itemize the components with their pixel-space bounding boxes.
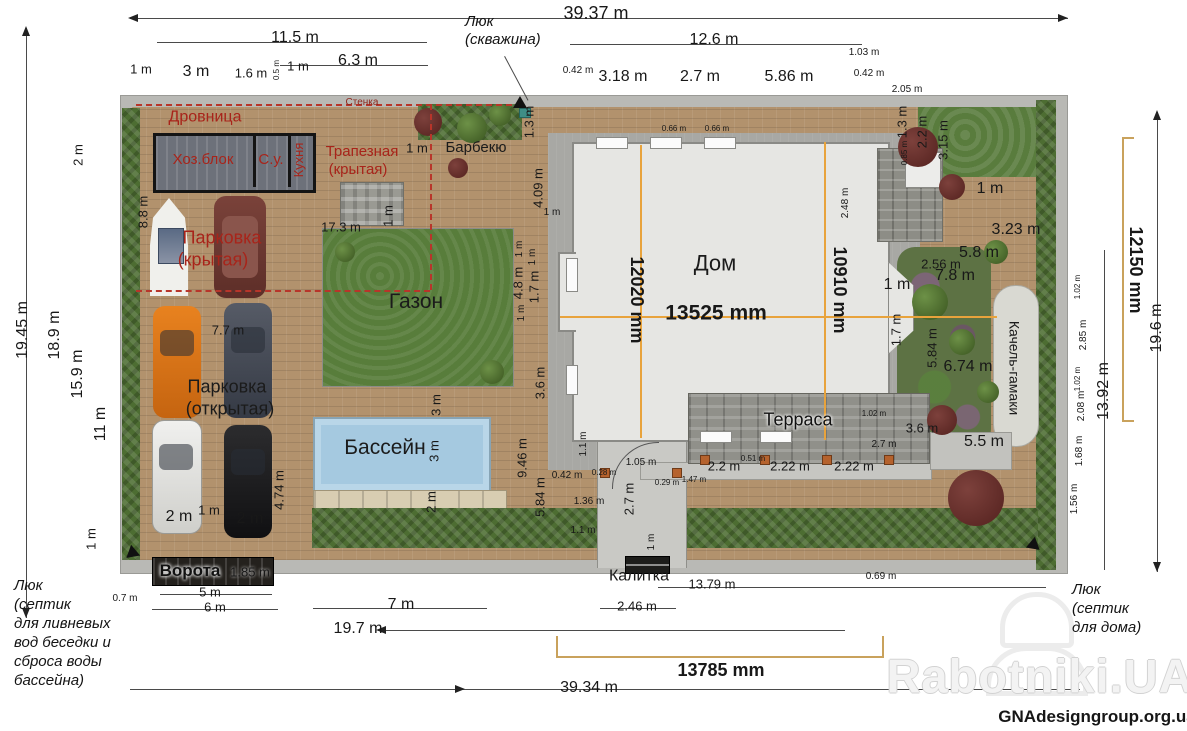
terrace-post: [822, 455, 832, 465]
dim-label-12150: 12150 mm: [1127, 226, 1145, 313]
dim-label: 1.68 m: [1075, 436, 1085, 467]
car-windshield: [160, 330, 194, 356]
septic-left-note: для ливневых: [14, 616, 111, 631]
dim-label: 1.85 m: [230, 566, 270, 579]
watermark-brand: Rabotniki.UA: [886, 651, 1187, 700]
dim-label: 0.28 m: [592, 469, 616, 477]
dim-label: 5 m: [199, 586, 221, 599]
car-windshield: [231, 449, 265, 475]
label-pool: Бассейн: [344, 437, 425, 459]
dim-label: 3.18 m: [599, 69, 648, 85]
dim-label: 1.02 m: [862, 410, 886, 418]
bracket-tick: [1122, 420, 1134, 422]
dim-label: 2.46 m: [617, 600, 657, 613]
tree-green: [912, 284, 948, 320]
dim-label: 2.22 m: [834, 460, 874, 473]
dim-label: 19.45 m: [15, 301, 31, 359]
zone-dashed-line: [430, 104, 432, 290]
dim-label: 0.42 m: [854, 69, 885, 79]
label-main-gate: Ворота: [160, 562, 221, 580]
zone-dashed-line: [136, 290, 430, 292]
dim-label: 1.56 m: [1070, 484, 1080, 515]
dim-label: 6 m: [204, 601, 226, 614]
dim-label: 1 m: [517, 305, 527, 322]
label-bathroom: С.у.: [258, 152, 283, 168]
dim-label: 1 m: [382, 205, 395, 227]
window: [566, 365, 578, 395]
dim-label: 0.66 m: [662, 125, 686, 133]
well-note-line: (скважина): [465, 32, 541, 47]
dim-label: 19.7 m: [334, 621, 383, 637]
dim-label: 2.7 m: [680, 69, 720, 85]
septic-right-note: Люк: [1072, 582, 1101, 597]
arrowhead-icon: [128, 14, 138, 22]
bush-green: [335, 242, 355, 262]
label-wicket-gate: Калитка: [609, 569, 669, 586]
dim-label: 6.3 m: [338, 53, 378, 69]
label-dining-2: (крытая): [329, 162, 388, 178]
dim-label: 6.74 m: [944, 359, 993, 375]
site-plan-canvas: Дровница Хоз.блок С.у. Кухня Трапезная (…: [0, 0, 1187, 731]
dim-label: 9.46 m: [516, 438, 529, 478]
dim-label: 1 m: [884, 277, 911, 293]
window: [704, 137, 736, 149]
label-lawn: Газон: [389, 291, 443, 313]
dim-label-12020: 12020 mm: [628, 256, 646, 343]
dim-label: 13.92 m: [1096, 362, 1112, 420]
window: [760, 431, 792, 443]
dim-label: 4.8 m: [512, 267, 525, 300]
dim-label: 0.51 m: [741, 455, 765, 463]
dim-label: 5.8 m: [959, 245, 999, 261]
window: [700, 431, 732, 443]
dim-label: 2.08 m: [1077, 391, 1087, 422]
dim-label: 2.2 m: [708, 460, 741, 473]
dim-label: 1.02 m: [1074, 367, 1082, 391]
septic-right-note: (септик: [1072, 601, 1129, 616]
dim-label: 11.5 m: [271, 30, 319, 46]
dim-label: 0.7 m: [112, 594, 137, 604]
dim-label: 2.05 m: [892, 85, 923, 95]
dim-label: 1 m: [977, 181, 1004, 197]
dim-label: 1.36 m: [574, 497, 605, 507]
dim-label: 2.22 m: [770, 460, 810, 473]
dim-label: 39.37 m: [563, 4, 628, 22]
arrowhead-icon: [22, 26, 30, 36]
dim-label: 1 m: [515, 241, 525, 258]
dim-label: 1.02 m: [1074, 275, 1082, 299]
tree-burgundy: [939, 174, 965, 200]
tree-green: [489, 104, 511, 126]
label-terrace: Терраса: [763, 411, 832, 430]
arrowhead-icon: [455, 685, 465, 693]
dim-label: 3.6 m: [534, 367, 547, 400]
car-windshield: [159, 444, 193, 470]
dim-label: 5.84 m: [926, 328, 939, 368]
dim-label: 1 m: [130, 63, 152, 76]
dim-label: 5.5 m: [964, 434, 1004, 450]
dim-label: 2.2 m: [916, 116, 929, 149]
dim-label: 4.09 m: [532, 168, 545, 208]
bracket-tick: [882, 636, 884, 658]
dim-label: 2.48 m: [841, 188, 851, 219]
dim-label: 1.05 m: [626, 458, 657, 468]
septic-left-note: Люк: [14, 578, 43, 593]
label-house: Дом: [694, 251, 737, 274]
arrowhead-icon: [1153, 110, 1161, 120]
worker-helmet-icon: [1000, 592, 1074, 648]
dim-label: 1 m: [544, 208, 561, 218]
arrowhead-icon: [1058, 14, 1068, 22]
dim-label: 12.6 m: [690, 32, 739, 48]
label-woodshed: Дровница: [169, 110, 242, 127]
septic-left-note: бассейна): [14, 673, 84, 688]
leader-line: [504, 56, 528, 101]
dim-label: 1 m: [198, 504, 220, 517]
well-note-line: Люк: [465, 14, 494, 29]
dim-label: 0.66 m: [705, 125, 729, 133]
bracket-tick: [556, 636, 558, 658]
dim-label: 2 m: [166, 509, 193, 525]
label-open-parking: Парковка: [188, 378, 267, 397]
dim-line-19-7: [378, 630, 845, 631]
tree-burgundy: [948, 470, 1004, 526]
label-open-parking-2: (открытая): [186, 400, 274, 419]
label-covered-parking-2: (крытая): [178, 251, 249, 270]
dim-label: 1 m: [406, 142, 428, 155]
window: [596, 137, 628, 149]
dim-label: 0.69 m: [866, 572, 897, 582]
dim-label: 7.8 m: [935, 268, 975, 284]
dim-label: 1.47 m: [682, 476, 706, 484]
septic-left-note: вод беседки и: [14, 635, 111, 650]
dim-label: 2.7 m: [871, 440, 896, 450]
dim-label: 3 m: [428, 440, 441, 462]
zone-dashed-line: [136, 104, 522, 106]
label-kitchen: Кухня: [292, 143, 306, 178]
dim-label: 1.3 m: [896, 106, 909, 139]
dim-label: 1.3 m: [523, 106, 536, 139]
dim-label: 5.84 m: [534, 477, 547, 517]
window: [650, 137, 682, 149]
dim-label: 1.6 m: [235, 67, 268, 80]
dim-label: 1.7 m: [890, 314, 903, 347]
dim-label: 5.86 m: [765, 69, 814, 85]
septic-left-note: (септик: [14, 597, 71, 612]
dim-label: 1 m: [647, 534, 657, 551]
dim-label: 0.29 m: [655, 479, 679, 487]
dim-label: 1 m: [85, 528, 98, 550]
dim-label: 1.7 m: [528, 271, 541, 304]
dim-label: 3 m: [430, 394, 443, 416]
dim-label: 2 m: [237, 511, 264, 527]
dim-label: 0.42 m: [563, 66, 594, 76]
axis-line-vertical: [824, 142, 826, 440]
dim-label: 1 m: [528, 249, 538, 266]
septic-right-note: для дома): [1072, 620, 1141, 635]
bracket-tick: [1122, 137, 1134, 139]
hedge-left: [122, 108, 140, 560]
label-covered-parking: Парковка: [183, 229, 262, 248]
dim-label: 7 m: [388, 597, 415, 613]
utility-block-divider: [253, 133, 256, 187]
dim-label: 2 m: [425, 491, 438, 513]
axis-line-horizontal: [560, 316, 997, 318]
tree-green: [977, 381, 999, 403]
septic-left-note: сброса воды: [14, 654, 102, 669]
dim-label: 19.6 m: [1149, 304, 1165, 353]
dim-label: 13.79 m: [689, 578, 736, 591]
label-wall: Стенка: [346, 98, 379, 109]
dim-label: 17.3 m: [321, 221, 361, 234]
hedge-right: [1036, 100, 1056, 570]
bracket-13785: [556, 656, 884, 658]
dim-label: 1.1 m: [570, 526, 595, 536]
dim-label: 0.42 m: [552, 471, 583, 481]
bracket-12150: [1122, 137, 1124, 422]
tree-burgundy: [414, 108, 442, 136]
dim-label: 3.15 m: [937, 120, 950, 160]
label-utility-block: Хоз.блок: [173, 152, 234, 168]
watermark-site-url: GNAdesigngroup.org.ua: [998, 708, 1187, 726]
dim-label: 15.9 m: [70, 350, 86, 399]
arrowhead-icon: [1153, 562, 1161, 572]
terrace-post: [884, 455, 894, 465]
label-barbecue: Барбекю: [445, 140, 506, 156]
dim-label: 3.23 m: [992, 222, 1041, 238]
bush-green: [480, 360, 504, 384]
dim-label: 1.1 m: [579, 431, 589, 456]
dim-label: 1 m: [287, 60, 309, 73]
tree-green: [949, 329, 975, 355]
dim-label-10910: 10910 mm: [831, 246, 849, 333]
dim-label-13785: 13785 mm: [677, 661, 764, 679]
dim-label: 3.6 m: [906, 422, 939, 435]
dim-label: 0.85 m: [901, 141, 909, 165]
label-dining: Трапезная: [326, 144, 399, 160]
dim-label: 1.03 m: [849, 48, 880, 58]
dim-label-13525: 13525 mm: [665, 303, 767, 324]
dim-label: 2.85 m: [1079, 320, 1089, 351]
dim-label: 8.8 m: [137, 196, 150, 229]
dim-label: 2 m: [72, 144, 85, 166]
dim-label: 4.74 m: [273, 470, 286, 510]
dim-label: 39.34 m: [560, 680, 618, 696]
dim-label: 7.7 m: [212, 324, 245, 337]
path-post: [672, 468, 682, 478]
dim-label: 2.7 m: [623, 483, 636, 516]
dim-label: 0.5 m: [273, 60, 281, 80]
label-swing-hammock: Качель-гамаки: [1007, 321, 1022, 415]
dim-label: 11 m: [93, 407, 109, 441]
dim-label: 18.9 m: [47, 311, 63, 360]
window: [566, 258, 578, 292]
dim-label: 3 m: [183, 64, 210, 80]
tree-burgundy: [448, 158, 468, 178]
